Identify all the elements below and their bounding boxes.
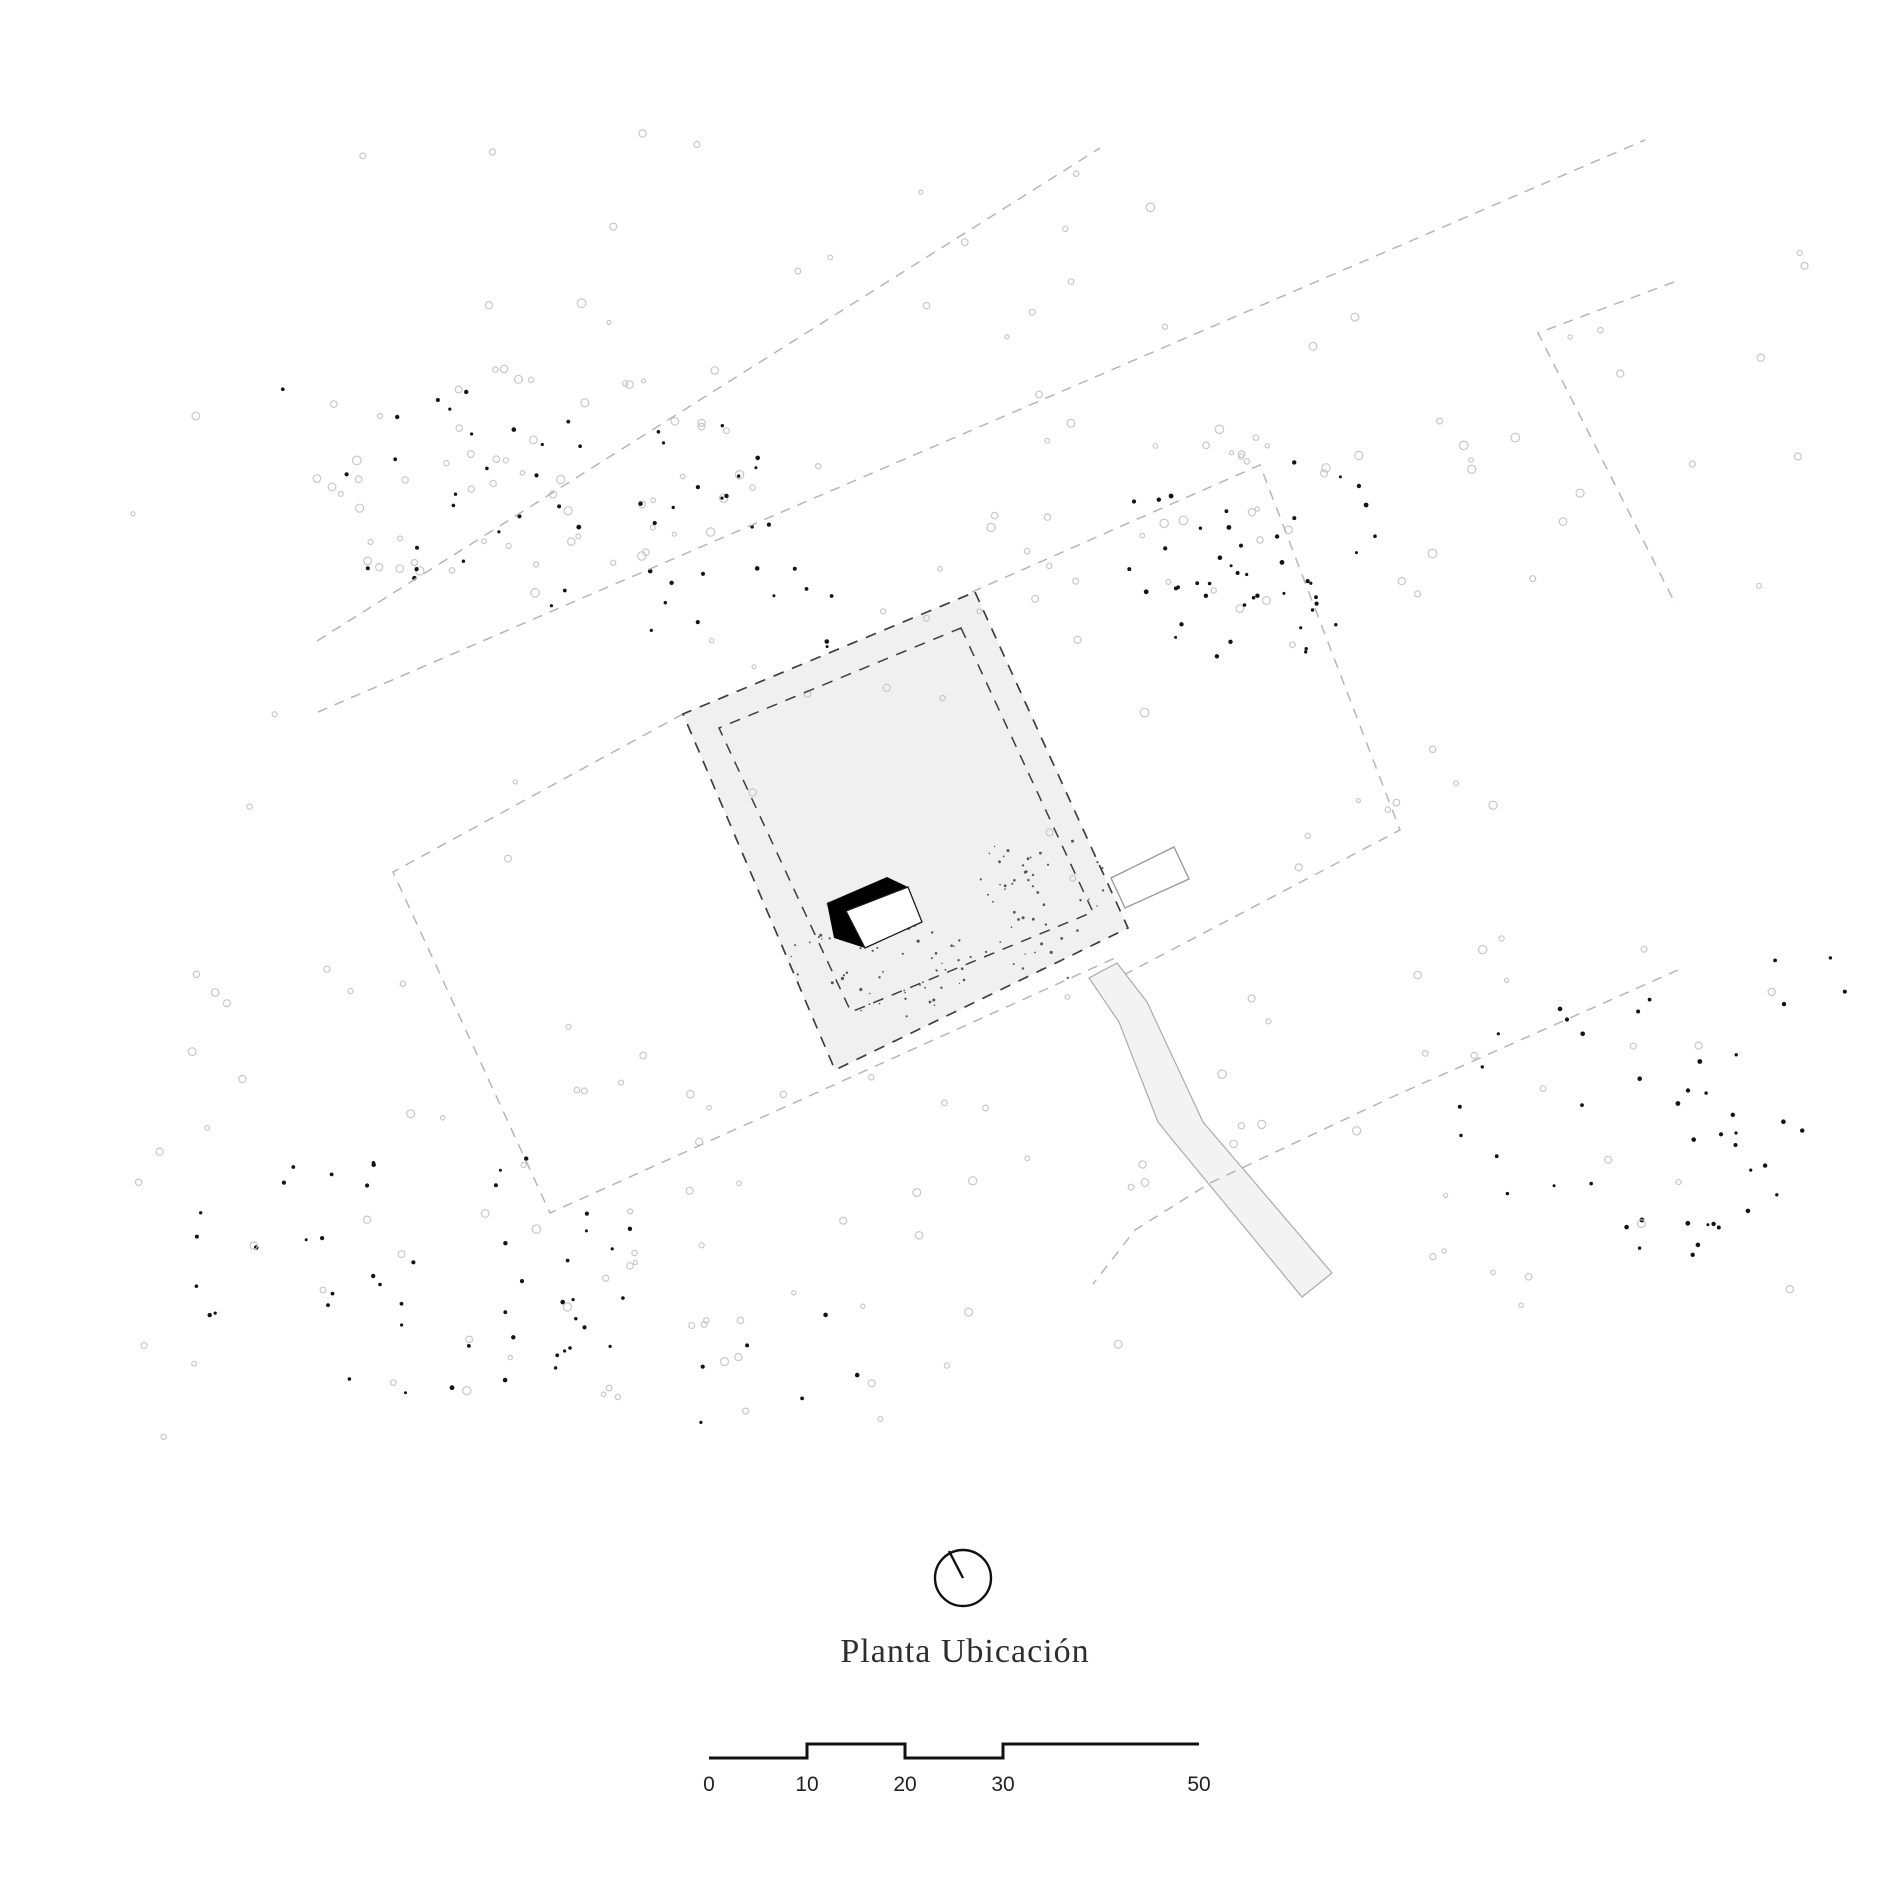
ground-debris-dot [961, 967, 964, 970]
ground-debris-dot [879, 1003, 881, 1005]
ground-debris-dot [1013, 963, 1015, 965]
shrub-dot [793, 567, 797, 571]
tree-symbol [1398, 578, 1405, 585]
tree-symbol [706, 528, 714, 536]
ground-debris-dot [1025, 953, 1026, 954]
tree-symbol [1437, 418, 1443, 424]
shrub-dot [767, 523, 771, 527]
tree-symbol [1218, 1070, 1226, 1078]
ground-debris-dot [1076, 929, 1079, 932]
tree-symbol [1794, 453, 1801, 460]
scale-tick-label-20: 20 [893, 1773, 916, 1797]
tree-symbol [481, 1210, 489, 1218]
tree-symbol [1024, 548, 1030, 554]
ground-debris-dot [929, 1001, 932, 1004]
tree-symbol [651, 498, 656, 503]
tree-symbol [223, 1000, 230, 1007]
tree-symbol [699, 1243, 704, 1248]
tree-symbol [1140, 533, 1145, 538]
shrub-dot [1252, 596, 1256, 600]
shrub-dot [1132, 499, 1136, 503]
tree-symbol [407, 1110, 415, 1118]
tree-symbol [1559, 518, 1567, 526]
tree-symbol [1540, 1086, 1546, 1092]
ground-debris-dot [1047, 864, 1049, 866]
tree-symbol [639, 130, 646, 137]
tree-symbol [687, 1091, 694, 1098]
ground-debris-dot [980, 878, 982, 880]
ground-debris-dot [794, 944, 796, 946]
ground-debris-dot [1060, 937, 1063, 940]
shrub-dot [195, 1235, 199, 1239]
shrub-dot [1245, 573, 1248, 576]
tree-symbol [1442, 1249, 1446, 1253]
tree-symbol [356, 504, 364, 512]
tree-symbol [1676, 1180, 1681, 1185]
shrub-dot [1179, 622, 1183, 626]
ground-debris-dot [970, 956, 972, 958]
shrub-dot [404, 1391, 407, 1394]
tree-symbol [610, 223, 617, 230]
ground-debris-dot [992, 901, 994, 903]
tree-symbol [1238, 1123, 1244, 1129]
tree-symbol [482, 539, 487, 544]
tree-symbol [156, 1148, 163, 1155]
shrub-dot [566, 1259, 570, 1263]
tree-symbol [368, 539, 373, 544]
ground-debris-dot [878, 976, 880, 978]
shrub-dot [524, 1156, 528, 1160]
tree-symbol [1044, 514, 1050, 520]
tree-symbol [360, 153, 366, 159]
ground-debris-dot [998, 860, 1001, 863]
tree-symbol [780, 1091, 786, 1097]
tree-symbol [1005, 335, 1009, 339]
shrub-dot [1763, 1163, 1767, 1167]
shrub-dot [1230, 564, 1233, 567]
ground-debris-dot [1004, 884, 1007, 887]
tree-symbol [1459, 441, 1468, 450]
shrub-dot [281, 387, 285, 391]
tree-symbol [313, 475, 321, 483]
shrub-dot [1735, 1053, 1738, 1056]
shrub-dot [345, 472, 349, 476]
tree-symbol [1414, 971, 1421, 978]
tree-symbol [944, 1363, 949, 1368]
boundary-dashed-line-road-line-north-a [317, 148, 1100, 641]
shrub-dot [1843, 990, 1847, 994]
tree-symbol [913, 1189, 921, 1197]
tree-symbol [965, 1308, 973, 1316]
tree-symbol [463, 1387, 471, 1395]
ground-debris-dot [1039, 852, 1042, 855]
tree-symbol [686, 1187, 693, 1194]
shrub-dot [585, 1212, 589, 1216]
ground-debris-dot [1088, 898, 1089, 899]
tree-symbol [792, 1291, 796, 1295]
tree-symbol [1141, 1179, 1149, 1187]
tree-symbol [1422, 1051, 1428, 1057]
tree-symbol [239, 1076, 246, 1083]
ground-debris-dot [791, 956, 792, 957]
tree-symbol [1236, 605, 1244, 613]
shrub-dot [755, 566, 760, 571]
shrub-dot [499, 1169, 502, 1172]
shrub-dot [1676, 1101, 1681, 1106]
tree-symbol [694, 142, 700, 148]
shrub-dot [1357, 484, 1361, 488]
shrub-dot [1218, 555, 1223, 560]
shrub-dot [1711, 1222, 1715, 1226]
tree-symbol [633, 1260, 637, 1264]
ground-debris-dot [829, 937, 831, 939]
ground-debris-dot [1102, 889, 1104, 891]
site-plan-canvas: Planta Ubicación 0 10 20 30 50 [0, 0, 1900, 1900]
tree-symbol [1491, 1270, 1495, 1274]
tree-symbol [915, 1232, 922, 1239]
shrub-dot [1236, 571, 1240, 575]
ground-debris-dot [931, 957, 933, 959]
shrub-dot [450, 1385, 455, 1390]
shrub-dot [1580, 1032, 1585, 1037]
tree-symbol [490, 480, 496, 486]
ground-debris-dot [859, 988, 862, 991]
shrub-dot [541, 443, 544, 446]
shrub-dot [696, 620, 700, 624]
tree-symbol [514, 375, 522, 383]
tree-symbol [1067, 419, 1075, 427]
shrub-dot [696, 485, 700, 489]
tree-symbol [364, 1216, 371, 1223]
tree-symbol [1305, 833, 1310, 838]
tree-symbol [737, 1181, 742, 1186]
shrub-dot [555, 1353, 559, 1357]
tree-symbol [628, 1209, 633, 1214]
tree-symbol [1321, 470, 1328, 477]
shrub-dot [1309, 582, 1312, 585]
tree-symbol [1255, 507, 1259, 511]
shrub-dot [657, 430, 661, 434]
shrub-dot [331, 1292, 335, 1296]
shrub-dot [720, 497, 723, 500]
shrub-dot [1558, 1007, 1563, 1012]
ground-debris-dot [959, 983, 960, 984]
ground-debris-dot [999, 941, 1001, 943]
ground-debris-dot [932, 999, 935, 1002]
shrub-dot [282, 1181, 286, 1185]
shrub-dot [1208, 582, 1212, 586]
shrub-dot [699, 1421, 702, 1424]
shrub-dot [563, 1349, 566, 1352]
shrub-dot [1163, 546, 1167, 550]
tree-symbol [141, 1343, 147, 1349]
shrub-dot [1299, 626, 1302, 629]
shrub-dot [494, 1183, 498, 1187]
ground-debris-dot [934, 1004, 936, 1006]
shrub-dot [1227, 525, 1232, 530]
scale-tick-label-30: 30 [991, 1773, 1014, 1797]
tree-symbol [795, 268, 801, 274]
shrub-dot [576, 525, 581, 530]
tree-symbol [1215, 425, 1223, 433]
ground-debris-dot [1022, 916, 1025, 919]
ground-debris-dot [1050, 951, 1053, 954]
shrub-dot [755, 456, 760, 461]
tree-symbol [508, 1355, 512, 1359]
shrub-dot [823, 1313, 828, 1318]
ground-debris-dot [941, 963, 942, 964]
tree-symbol [615, 1394, 620, 1399]
tree-symbol [1029, 309, 1035, 315]
shrub-dot [1228, 640, 1232, 644]
tree-symbol [987, 523, 995, 531]
ground-debris-dot [1079, 899, 1081, 901]
ground-debris-dot [924, 987, 926, 989]
shrub-dot [672, 506, 675, 509]
tree-symbol [468, 486, 474, 492]
tree-symbol [611, 560, 616, 565]
ground-debris-dot [882, 971, 884, 973]
shrub-dot [578, 444, 582, 448]
tree-symbol [1469, 458, 1473, 462]
ground-debris-dot [1040, 942, 1043, 945]
shrub-dot [628, 1227, 632, 1231]
ground-debris-dot [1071, 840, 1074, 843]
tree-symbol [627, 1263, 633, 1269]
shrub-dot [1717, 1226, 1721, 1230]
shrub-dot [855, 1373, 860, 1378]
tree-symbol [364, 557, 372, 565]
shrub-dot [454, 493, 457, 496]
tree-symbol [1641, 946, 1647, 952]
tree-symbol [531, 589, 539, 597]
tree-symbol [376, 564, 383, 571]
tree-symbol [1139, 1161, 1146, 1168]
shrub-dot [1696, 1243, 1701, 1248]
tree-symbol [672, 532, 676, 536]
tree-symbol [1353, 1127, 1361, 1135]
shrub-dot [393, 457, 397, 461]
ground-debris-dot [931, 931, 933, 933]
shrub-dot [550, 604, 553, 607]
shrub-dot [411, 1260, 415, 1264]
tree-symbol [1598, 328, 1603, 333]
tree-symbol [650, 525, 655, 530]
ground-debris-dot [950, 944, 953, 947]
tree-symbol [1266, 1019, 1271, 1024]
shrub-dot [566, 420, 570, 424]
tree-symbol [1244, 459, 1249, 464]
shrub-dot [563, 589, 567, 593]
tree-symbol [568, 538, 575, 545]
ground-debris-dot [1004, 888, 1006, 890]
shrub-dot [621, 1296, 625, 1300]
tree-symbol [391, 1380, 397, 1386]
shrub-dot [400, 1323, 403, 1326]
ground-debris-dot [945, 969, 947, 971]
annex-structure-outline [1111, 847, 1189, 908]
tree-symbol [735, 1354, 742, 1361]
shrub-dot [1624, 1225, 1629, 1230]
shrub-dot [1311, 608, 1314, 611]
shrub-dot [348, 1377, 352, 1381]
shrub-dot [830, 594, 834, 598]
shrub-dot [415, 567, 419, 571]
tree-symbol [500, 365, 507, 372]
tree-symbol [938, 567, 943, 572]
tree-symbol [1063, 226, 1068, 231]
shrub-dot [1282, 592, 1285, 595]
tree-symbol [724, 428, 730, 434]
tree-symbol [1146, 203, 1155, 212]
shrub-dot [1704, 1091, 1707, 1094]
tree-symbol [247, 804, 252, 809]
tree-symbol [1430, 1254, 1436, 1260]
tree-symbol [455, 386, 462, 393]
ground-debris-dot [1027, 879, 1029, 881]
ground-debris-dot [904, 992, 906, 994]
ground-debris-dot [809, 942, 811, 944]
ground-debris-dot [987, 894, 989, 896]
tree-symbol [1428, 549, 1437, 558]
shrub-dot [1215, 654, 1219, 658]
shrub-dot [503, 1310, 507, 1314]
shrub-dot [1292, 460, 1296, 464]
shrub-dot [497, 530, 500, 533]
shrub-dot [1734, 1143, 1738, 1147]
ground-debris-dot [1013, 911, 1016, 914]
ground-debris-dot [957, 959, 959, 961]
shrub-dot [664, 601, 667, 604]
tree-symbol [441, 1116, 445, 1120]
shrub-dot [378, 1283, 382, 1287]
tree-symbol [530, 436, 538, 444]
ground-debris-dot [958, 939, 960, 941]
access-path [1089, 963, 1332, 1297]
shrub-dot [1174, 586, 1178, 590]
shrub-dot [825, 639, 830, 644]
shrub-dot [1195, 581, 1199, 585]
tree-symbol [564, 507, 572, 515]
shrub-dot [214, 1312, 217, 1315]
shrub-dot [305, 1238, 308, 1241]
tree-symbol [398, 1251, 405, 1258]
tree-symbol [710, 638, 714, 642]
shrub-dot [503, 1241, 507, 1245]
tree-symbol [750, 485, 755, 490]
shrub-dot [1497, 1032, 1500, 1035]
tree-symbol [752, 665, 756, 669]
shrub-dot [1174, 636, 1177, 639]
ground-debris-dot [1045, 923, 1047, 925]
shrub-dot [800, 1397, 804, 1401]
tree-symbol [411, 560, 417, 566]
ground-debris-dot [1032, 918, 1035, 921]
tree-symbol [338, 492, 343, 497]
tree-symbol [1689, 461, 1695, 467]
tree-symbol [1797, 250, 1802, 255]
ground-debris-dot [1096, 861, 1098, 863]
tree-symbol [328, 483, 336, 491]
tree-symbol [1179, 516, 1188, 525]
tree-symbol [632, 1250, 637, 1255]
tree-symbol [520, 471, 525, 476]
shrub-dot [574, 1317, 577, 1320]
shrub-dot [1719, 1132, 1723, 1136]
tree-symbol [1230, 1140, 1237, 1147]
tree-symbol [192, 412, 200, 420]
shrub-dot [1127, 567, 1131, 571]
shrub-dot [330, 1173, 334, 1177]
ground-debris-dot [1017, 918, 1020, 921]
tree-symbol [1519, 1303, 1523, 1307]
tree-symbol [1568, 335, 1572, 339]
tree-symbol [1160, 519, 1168, 527]
tree-symbol [444, 461, 449, 466]
tree-symbol [840, 1217, 847, 1224]
shrub-dot [1304, 650, 1307, 653]
ground-debris-dot [1030, 857, 1032, 859]
tree-symbol [816, 464, 821, 469]
tree-symbol [135, 1179, 141, 1185]
tree-symbol [1074, 171, 1079, 176]
shrub-dot [1355, 551, 1358, 554]
tree-symbol [1511, 433, 1520, 442]
shrub-dot [1697, 1059, 1702, 1064]
shrub-dot [195, 1284, 199, 1288]
plan-title: Planta Ubicación [840, 1633, 1089, 1671]
tree-symbol [193, 971, 199, 977]
shrub-dot [737, 474, 740, 477]
site-plan-drawing [0, 0, 1900, 1900]
shrub-dot [291, 1165, 295, 1169]
scale-bar [709, 1744, 1199, 1758]
shrub-dot [1169, 494, 1174, 499]
shrub-dot [1306, 579, 1310, 583]
shrub-dot [1553, 1184, 1556, 1187]
tree-symbol [534, 562, 539, 567]
shrub-dot [371, 1274, 375, 1278]
tree-symbol [205, 1126, 210, 1131]
shrub-dot [511, 1335, 515, 1339]
shrub-dot [1685, 1221, 1690, 1226]
ground-debris-dot [1067, 977, 1069, 979]
shrub-dot [568, 1346, 572, 1350]
boundary-dashed-line-neighbor-corner-northeast [1538, 282, 1676, 605]
shrub-dot [1459, 1134, 1462, 1137]
shrub-dot [701, 572, 705, 576]
ground-debris-dot [1032, 885, 1034, 887]
shrub-dot [754, 466, 757, 469]
tree-symbol [1166, 579, 1171, 584]
ground-debris-dot [1022, 967, 1024, 969]
ground-debris-dot [1032, 874, 1034, 876]
tree-symbol [456, 425, 462, 431]
tree-symbol [923, 303, 929, 309]
tree-symbol [581, 399, 589, 407]
tree-symbol [1257, 537, 1263, 543]
tree-symbol [1415, 591, 1421, 597]
tree-symbol [1295, 864, 1302, 871]
ground-debris-dot [994, 846, 995, 847]
shrub-dot [1495, 1154, 1499, 1158]
ground-debris-dot [906, 1015, 908, 1017]
tree-symbol [1576, 489, 1584, 497]
tree-symbol [1525, 1273, 1532, 1280]
shrub-dot [1373, 534, 1377, 538]
ground-debris-dot [819, 934, 822, 937]
tree-symbol [1630, 1043, 1636, 1049]
